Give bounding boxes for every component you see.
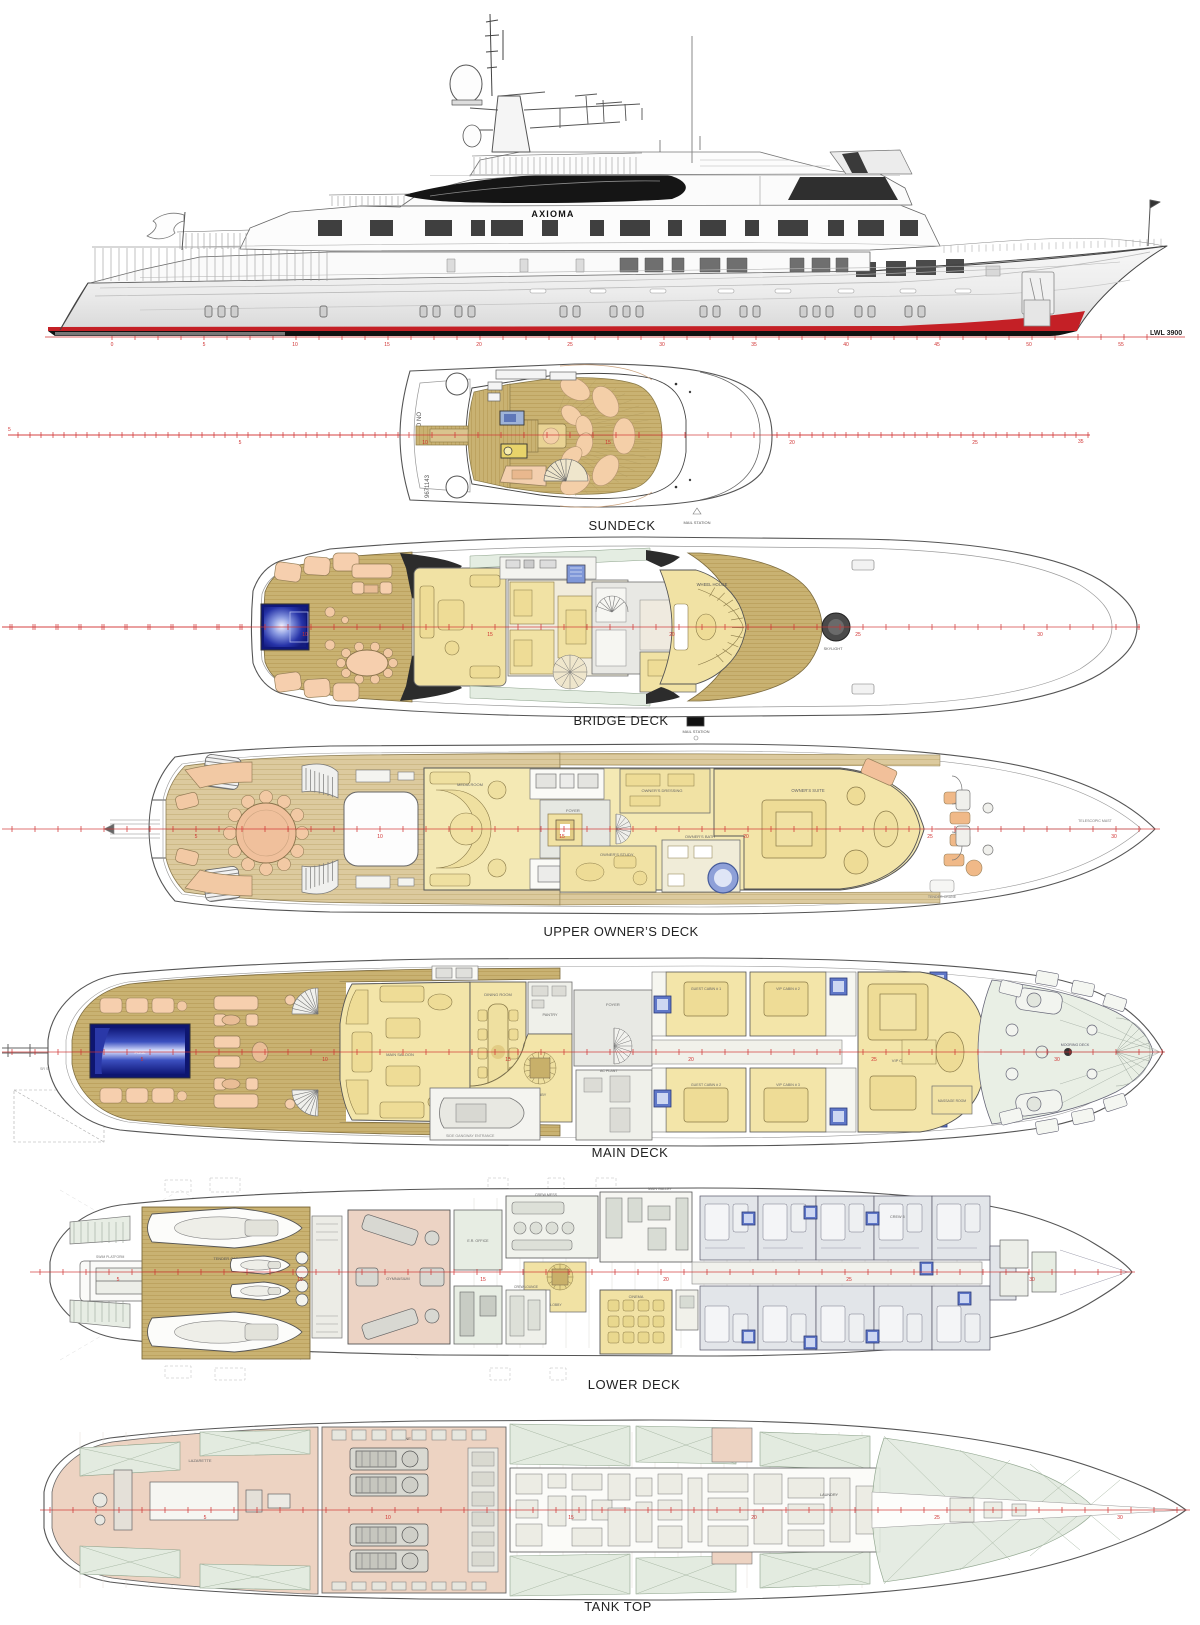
- svg-text:MAIN DECK: MAIN DECK: [592, 1145, 669, 1160]
- svg-text:5: 5: [239, 440, 242, 446]
- svg-text:CREW LOUNGE: CREW LOUNGE: [514, 1285, 538, 1289]
- svg-text:15: 15: [505, 1057, 511, 1063]
- svg-text:OWNER’S STUDY: OWNER’S STUDY: [600, 852, 634, 857]
- svg-text:MAIL STATION: MAIL STATION: [683, 520, 710, 525]
- svg-text:MEDIA ROOM: MEDIA ROOM: [457, 782, 483, 787]
- svg-text:PANTRY: PANTRY: [542, 1013, 558, 1017]
- svg-text:TANK TOP: TANK TOP: [584, 1599, 652, 1614]
- svg-text:20: 20: [688, 1057, 694, 1063]
- svg-text:30: 30: [1054, 1057, 1060, 1063]
- svg-text:5: 5: [141, 1057, 144, 1063]
- svg-text:30: 30: [659, 342, 665, 348]
- svg-text:LAZARETTE: LAZARETTE: [188, 1458, 211, 1463]
- svg-text:15: 15: [487, 632, 493, 638]
- svg-text:10: 10: [302, 632, 308, 638]
- svg-text:15: 15: [480, 1277, 486, 1283]
- svg-text:E.R. OFFICE: E.R. OFFICE: [467, 1239, 489, 1243]
- svg-text:10: 10: [385, 1515, 391, 1521]
- svg-text:BRIDGE DECK: BRIDGE DECK: [573, 713, 668, 728]
- svg-text:SWIM PLATFORM: SWIM PLATFORM: [96, 1255, 125, 1259]
- svg-text:SUNDECK: SUNDECK: [588, 518, 655, 533]
- svg-text:GYMNASIUM: GYMNASIUM: [386, 1277, 409, 1281]
- svg-text:POOL: POOL: [134, 1050, 146, 1055]
- svg-text:25: 25: [846, 1277, 852, 1283]
- svg-text:MAIL STATION: MAIL STATION: [682, 729, 709, 734]
- svg-text:LOWER DECK: LOWER DECK: [588, 1377, 680, 1392]
- svg-text:VIP CABIN # 3: VIP CABIN # 3: [776, 1083, 800, 1087]
- svg-text:25: 25: [871, 1057, 877, 1063]
- svg-text:TELESCOPIC MAST: TELESCOPIC MAST: [1078, 819, 1113, 823]
- svg-text:20: 20: [476, 342, 482, 348]
- svg-text:GUEST CABIN # 1: GUEST CABIN # 1: [691, 987, 721, 991]
- svg-text:25: 25: [855, 632, 861, 638]
- svg-text:10: 10: [292, 342, 298, 348]
- svg-text:25: 25: [972, 440, 978, 446]
- svg-text:5: 5: [8, 427, 11, 433]
- svg-text:15: 15: [605, 440, 611, 446]
- svg-text:30: 30: [1117, 1515, 1123, 1521]
- svg-text:LOBBY: LOBBY: [550, 1303, 562, 1307]
- svg-text:FOYER: FOYER: [606, 1002, 620, 1007]
- svg-text:OWNER’S SUITE: OWNER’S SUITE: [791, 788, 824, 793]
- svg-text:30: 30: [1037, 632, 1043, 638]
- svg-text:35: 35: [751, 342, 757, 348]
- svg-text:30: 30: [1111, 834, 1117, 840]
- svg-text:MAIN GALLEY: MAIN GALLEY: [648, 1187, 673, 1191]
- svg-text:OWNER’S BATH: OWNER’S BATH: [685, 834, 715, 839]
- svg-text:10: 10: [322, 1057, 328, 1063]
- svg-text:5: 5: [204, 1515, 207, 1521]
- svg-text:40: 40: [843, 342, 849, 348]
- svg-text:CREW MESS: CREW MESS: [535, 1193, 558, 1197]
- svg-text:20: 20: [663, 1277, 669, 1283]
- svg-text:20: 20: [789, 440, 795, 446]
- svg-text:VIP CABIN # 2: VIP CABIN # 2: [776, 987, 800, 991]
- svg-text:SKYLIGHT: SKYLIGHT: [824, 647, 843, 651]
- svg-text:CREW 5: CREW 5: [890, 1215, 905, 1219]
- svg-text:GUEST CABIN # 2: GUEST CABIN # 2: [691, 1083, 721, 1087]
- svg-text:5: 5: [203, 342, 206, 348]
- svg-text:LAUNDRY: LAUNDRY: [820, 1493, 839, 1497]
- svg-text:10: 10: [422, 440, 428, 446]
- svg-text:10: 10: [297, 1277, 303, 1283]
- svg-text:15: 15: [568, 1515, 574, 1521]
- svg-text:SIDE GANGWAY ENTRANCE: SIDE GANGWAY ENTRANCE: [446, 1134, 495, 1138]
- svg-text:FOYER: FOYER: [566, 808, 580, 813]
- svg-text:TENDER CRANE: TENDER CRANE: [928, 895, 957, 899]
- svg-text:WHEEL HOUSE: WHEEL HOUSE: [697, 582, 728, 587]
- svg-text:0: 0: [111, 342, 114, 348]
- svg-text:CINEMA: CINEMA: [629, 1295, 644, 1299]
- svg-text:30: 30: [1029, 1277, 1035, 1283]
- svg-text:25: 25: [934, 1515, 940, 1521]
- svg-text:MAIN SALOON: MAIN SALOON: [386, 1052, 414, 1057]
- svg-text:AC PLANT: AC PLANT: [600, 1069, 618, 1073]
- svg-text:20: 20: [669, 632, 675, 638]
- svg-text:35: 35: [1078, 439, 1084, 445]
- svg-text:20: 20: [751, 1515, 757, 1521]
- svg-text:OWNER’S DRESSING: OWNER’S DRESSING: [642, 788, 683, 793]
- svg-text:10: 10: [377, 834, 383, 840]
- svg-text:15: 15: [384, 342, 390, 348]
- svg-text:50: 50: [1026, 342, 1032, 348]
- svg-text:20: 20: [743, 834, 749, 840]
- svg-text:5: 5: [195, 834, 198, 840]
- svg-text:AXIOMA: AXIOMA: [531, 209, 574, 219]
- svg-text:MASSAGE ROOM: MASSAGE ROOM: [938, 1099, 966, 1103]
- svg-text:5: 5: [117, 1277, 120, 1283]
- svg-text:9671143: 9671143: [425, 474, 431, 498]
- svg-text:55: 55: [1118, 342, 1124, 348]
- svg-text:45: 45: [934, 342, 940, 348]
- svg-text:UPPER OWNER’S DECK: UPPER OWNER’S DECK: [544, 924, 699, 939]
- svg-text:25: 25: [567, 342, 573, 348]
- svg-text:15: 15: [559, 834, 565, 840]
- svg-text:LWL 3900: LWL 3900: [1150, 330, 1182, 337]
- svg-text:25: 25: [927, 834, 933, 840]
- svg-text:DINING ROOM: DINING ROOM: [484, 992, 512, 997]
- svg-text:MOORING DECK: MOORING DECK: [1061, 1043, 1090, 1047]
